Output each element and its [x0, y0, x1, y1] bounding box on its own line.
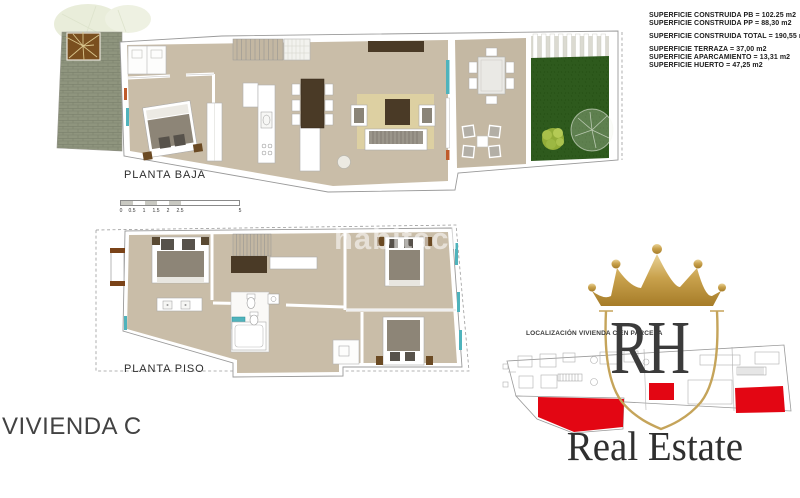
armchair-icon-left — [351, 105, 367, 126]
coffee-table — [385, 99, 410, 125]
logo-name: Real Estate — [558, 426, 752, 466]
watermark: habitaclia — [334, 221, 487, 257]
armchair-icon-right — [419, 105, 435, 126]
dining-table-icon — [292, 79, 333, 128]
scale-tick: 2.5 — [177, 208, 184, 214]
scale-tick: 1.5 — [153, 208, 160, 214]
brick-terrace — [57, 32, 122, 151]
scale-tick: 0 — [120, 208, 123, 214]
surface-info-block: SUPERFICIE CONSTRUIDA PB = 102.25 m2 SUP… — [649, 12, 800, 75]
crown-icon — [588, 244, 726, 306]
plant-icon — [338, 156, 351, 169]
surface-line-pp: SUPERFICIE CONSTRUIDA PP = 88,30 m2 — [649, 20, 800, 28]
surface-line-total: SUPERFICIE CONSTRUIDA TOTAL = 190,55 m2 — [649, 33, 800, 41]
surface-line-terraza: SUPERFICIE TERRAZA = 37,00 m2 — [649, 46, 800, 54]
kitchen-island — [300, 126, 320, 171]
balcony — [110, 248, 125, 286]
bed-icon-piso-1 — [152, 237, 209, 283]
scale-bar: 0 0.5 1 1.5 2 2.5 5 — [120, 200, 244, 216]
closet — [333, 340, 359, 364]
scale-tick: 2 — [167, 208, 170, 214]
tv-console — [368, 41, 424, 52]
utility-rooms — [128, 46, 166, 74]
faint-tree-icon — [571, 109, 613, 151]
scale-tick: 5 — [239, 208, 242, 214]
sofa-icon — [365, 129, 427, 150]
scale-tick: 0.5 — [129, 208, 136, 214]
planta-baja-plan — [54, 4, 622, 192]
scale-tick: 1 — [143, 208, 146, 214]
surface-line-aparcamiento: SUPERFICIE APARCAMIENTO = 13,31 m2 — [649, 54, 800, 62]
unit-title: VIVIENDA C — [2, 413, 142, 441]
planta-baja-label: PLANTA BAJA — [124, 169, 206, 181]
stairs-baja — [233, 39, 310, 60]
surface-line-huerto: SUPERFICIE HUERTO = 47,25 m2 — [649, 62, 800, 70]
bush-icon — [542, 128, 564, 150]
surface-line-pb: SUPERFICIE CONSTRUIDA PB = 102.25 m2 — [649, 12, 800, 20]
pergola — [531, 34, 609, 60]
scale-bar-ruler — [120, 200, 240, 206]
planta-piso-label: PLANTA PISO — [124, 363, 205, 375]
logo-initials: RH — [610, 316, 704, 380]
floorplan-sheet: SUPERFICIE CONSTRUIDA PB = 102.25 m2 SUP… — [0, 0, 800, 498]
vanity — [157, 298, 202, 311]
